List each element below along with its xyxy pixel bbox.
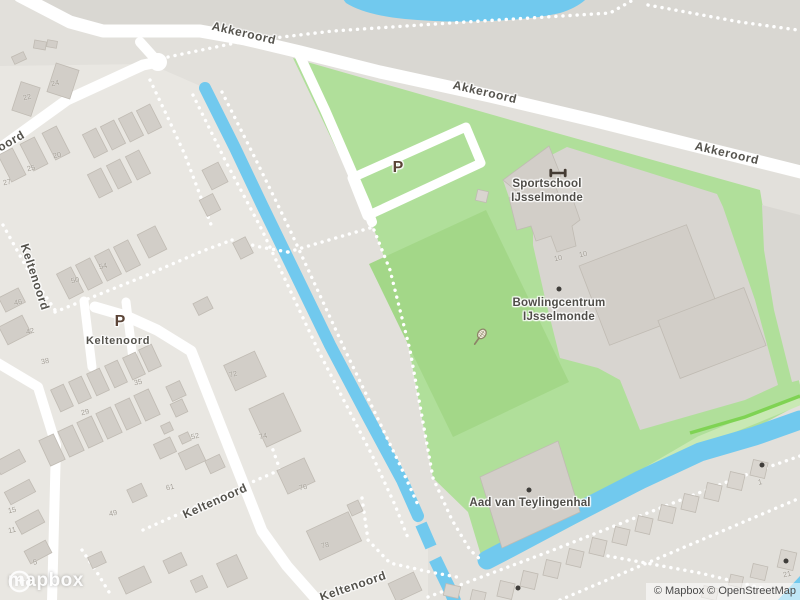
shed [566, 549, 584, 568]
house-number: 61 [165, 482, 175, 493]
mapbox-logo[interactable]: mapbox [8, 570, 84, 592]
poi-dot [516, 586, 521, 591]
house-number: 42 [25, 326, 35, 337]
shed [520, 571, 538, 590]
building [33, 40, 46, 50]
building [46, 40, 57, 49]
shed [750, 563, 768, 580]
house-number: 50 [70, 275, 80, 286]
parking-icon: P [115, 313, 126, 331]
mapbox-logo-icon [8, 570, 31, 593]
house-number: 54 [98, 261, 108, 272]
house-number: 76 [298, 482, 308, 493]
street-label: Keltenoord [86, 335, 150, 347]
house-number: 38 [40, 356, 50, 367]
house-number: 27 [2, 177, 12, 188]
house-number: 29 [80, 407, 90, 418]
house-number: 15 [7, 505, 17, 516]
poi-dot [760, 463, 765, 468]
map-tiles [0, 0, 800, 600]
house-number: 11 [7, 525, 16, 535]
house-number: 74 [258, 431, 268, 442]
house-number: 46 [13, 297, 23, 308]
house-number: 52 [190, 431, 200, 442]
shed [475, 189, 488, 202]
house-number: 49 [108, 508, 118, 519]
shed [497, 581, 515, 600]
house-number: 10 [578, 249, 588, 260]
poi-dot [784, 559, 789, 564]
shed [635, 516, 653, 535]
house-number: 72 [228, 369, 238, 380]
attribution[interactable]: © Mapbox © OpenStreetMap [646, 583, 800, 600]
house-number: 20 [52, 150, 62, 161]
house-number: 78 [320, 540, 330, 551]
shed [750, 460, 768, 479]
shed [681, 494, 699, 513]
shed [612, 527, 630, 546]
shed [658, 505, 676, 524]
poi-label: Aad van Teylingenhal [469, 496, 590, 510]
road-bulb [149, 53, 167, 71]
poi-dot [527, 488, 532, 493]
shed [470, 590, 486, 600]
house-number: 22 [22, 92, 32, 103]
house-number: 21 [782, 569, 792, 580]
house-number: 10 [553, 253, 563, 264]
map-canvas[interactable]: AkkeroordAkkeroordAkkeroordoordKeltenoor… [0, 0, 800, 600]
poi-label: BowlingcentrumIJsselmonde [513, 296, 606, 324]
poi-dot [557, 287, 562, 292]
shed [704, 483, 722, 502]
shed [727, 472, 745, 491]
poi-label: SportschoolIJsselmonde [511, 177, 583, 205]
building [11, 52, 26, 65]
footpath-bridge [288, 228, 370, 252]
parking-icon: P [393, 159, 404, 177]
shed [543, 560, 561, 579]
house-number: 24 [50, 78, 60, 89]
house-number: 25 [26, 163, 36, 174]
shed [589, 538, 607, 557]
attribution-text: © Mapbox © OpenStreetMap [654, 585, 796, 597]
house-number: 35 [133, 377, 143, 388]
